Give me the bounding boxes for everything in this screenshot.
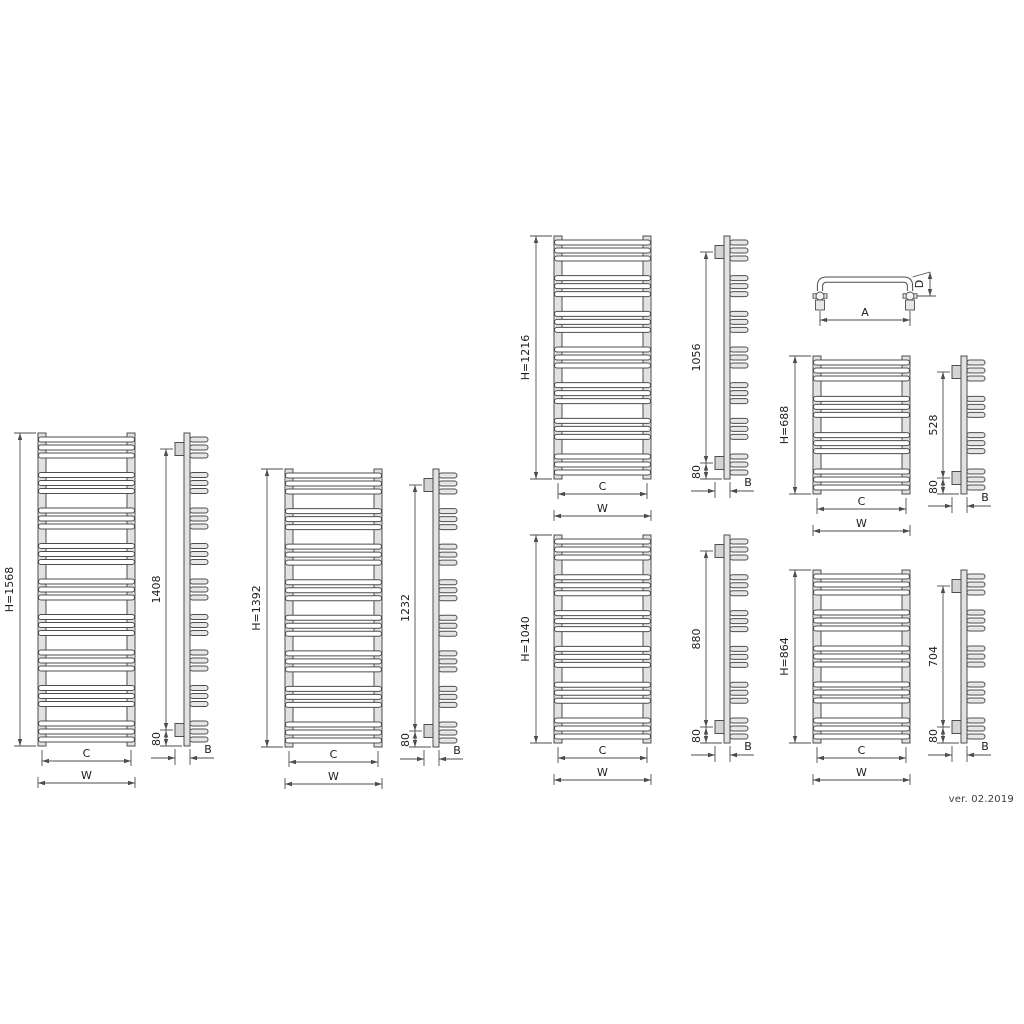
dimension-connection-span: 1232 bbox=[399, 485, 422, 731]
side-view bbox=[424, 469, 457, 747]
dimension-connection-span: 704 bbox=[927, 586, 950, 727]
wall-depth-label: B bbox=[744, 476, 752, 489]
dimension-overall-width: W bbox=[813, 517, 910, 536]
dimension-height: H=1568 bbox=[3, 433, 36, 746]
bottom-offset-label: 80 bbox=[690, 465, 703, 479]
overall-width-label: W bbox=[328, 770, 339, 783]
detail-width-label: A bbox=[861, 306, 869, 319]
bar-ends bbox=[967, 574, 985, 739]
wall-depth-label: B bbox=[744, 740, 752, 753]
top-connection bbox=[952, 366, 961, 379]
front-view bbox=[554, 236, 651, 479]
front-view bbox=[554, 535, 651, 743]
dimension-overall-width: W bbox=[813, 766, 910, 785]
connection-span-label: 880 bbox=[690, 629, 703, 650]
bar-detail-top-view: AD bbox=[813, 272, 936, 326]
top-connection bbox=[715, 545, 724, 558]
dimension-height: H=688 bbox=[778, 356, 811, 494]
top-connection bbox=[715, 246, 724, 259]
overall-width-label: W bbox=[597, 766, 608, 779]
top-connection bbox=[424, 479, 433, 492]
overall-width-label: W bbox=[81, 769, 92, 782]
bottom-offset-label: 80 bbox=[927, 480, 940, 494]
connection-span-label: 1056 bbox=[690, 344, 703, 372]
bottom-offset-label: 80 bbox=[399, 733, 412, 747]
overall-width-label: W bbox=[856, 766, 867, 779]
dimension-d: D bbox=[913, 272, 936, 296]
bottom-offset-label: 80 bbox=[150, 732, 163, 746]
height-label: H=1392 bbox=[250, 585, 263, 630]
side-view bbox=[715, 236, 748, 479]
inner-width-label: C bbox=[330, 748, 338, 761]
bottom-connection bbox=[175, 724, 184, 737]
fitting-foot bbox=[816, 300, 825, 310]
side-view bbox=[952, 570, 985, 743]
towel-bars bbox=[555, 539, 651, 739]
dimension-height: H=1216 bbox=[519, 236, 552, 479]
radiator-unit-1: H=1568CW140880B bbox=[3, 433, 214, 788]
top-connection bbox=[952, 580, 961, 593]
bar-fitting bbox=[813, 292, 827, 310]
connection-span-label: 528 bbox=[927, 415, 940, 436]
dimension-height: H=1040 bbox=[519, 535, 552, 743]
inner-width-label: C bbox=[599, 480, 607, 493]
tube-inner-edge bbox=[823, 282, 908, 291]
right-collector-rail bbox=[643, 535, 651, 743]
left-collector-rail bbox=[554, 535, 562, 743]
fitting-nut bbox=[906, 292, 914, 300]
radiator-unit-4: H=1040CW88080B bbox=[519, 535, 754, 785]
side-view bbox=[715, 535, 748, 743]
dimension-overall-width: W bbox=[554, 766, 651, 785]
fitting-foot bbox=[906, 300, 915, 310]
bar-ends bbox=[730, 539, 748, 739]
front-view bbox=[813, 570, 910, 743]
collector-profile bbox=[724, 236, 730, 479]
dimension-height: H=1392 bbox=[250, 469, 283, 747]
radiator-unit-5: H=688CW52880B bbox=[778, 356, 991, 536]
connection-span-label: 1408 bbox=[150, 576, 163, 604]
collector-profile bbox=[961, 570, 967, 743]
height-label: H=688 bbox=[778, 406, 791, 444]
bar-ends bbox=[967, 360, 985, 490]
dimension-connection-span: 880 bbox=[690, 551, 713, 727]
bottom-connection bbox=[715, 721, 724, 734]
dimension-inner-width: C bbox=[817, 744, 906, 763]
drawing-canvas: H=1568CW140880BH=1392CW123280BH=1216CW10… bbox=[0, 0, 1024, 1024]
bar-ends bbox=[439, 473, 457, 743]
fitting-nut bbox=[816, 292, 824, 300]
connection-span-label: 1232 bbox=[399, 594, 412, 622]
side-view bbox=[952, 356, 985, 494]
radiator-unit-6: H=864CW70480B bbox=[778, 570, 991, 785]
towel-bars bbox=[555, 240, 651, 475]
height-label: H=1568 bbox=[3, 567, 16, 612]
dimension-connection-span: 1056 bbox=[690, 252, 713, 463]
version-label: ver. 02.2019 bbox=[949, 794, 1014, 805]
collector-profile bbox=[961, 356, 967, 494]
height-label: H=1216 bbox=[519, 335, 532, 380]
towel-bars bbox=[814, 574, 910, 739]
radiator-unit-3: H=1216CW105680B bbox=[519, 236, 754, 521]
bottom-connection bbox=[715, 457, 724, 470]
wall-depth-label: B bbox=[204, 743, 212, 756]
technical-drawing-page: H=1568CW140880BH=1392CW123280BH=1216CW10… bbox=[0, 0, 1024, 1024]
height-label: H=864 bbox=[778, 637, 791, 675]
inner-width-label: C bbox=[599, 744, 607, 757]
dimension-height: H=864 bbox=[778, 570, 811, 743]
towel-bars bbox=[814, 360, 910, 490]
bar-tube bbox=[817, 277, 912, 291]
bar-fitting bbox=[903, 292, 917, 310]
dimension-overall-width: W bbox=[285, 770, 382, 789]
dimension-inner-width: C bbox=[817, 495, 906, 514]
dimension-connection-span: 1408 bbox=[150, 449, 173, 730]
dimension-inner-width: C bbox=[42, 747, 131, 766]
top-connection bbox=[175, 443, 184, 456]
dimension-connection-span: 528 bbox=[927, 372, 950, 478]
radiator-unit-2: H=1392CW123280B bbox=[250, 469, 463, 789]
front-view bbox=[285, 469, 382, 747]
overall-width-label: W bbox=[597, 502, 608, 515]
front-view bbox=[38, 433, 135, 746]
overall-width-label: W bbox=[856, 517, 867, 530]
connection-span-label: 704 bbox=[927, 646, 940, 667]
wall-depth-label: B bbox=[981, 740, 989, 753]
bottom-connection bbox=[424, 725, 433, 738]
collector-profile bbox=[184, 433, 190, 746]
collector-profile bbox=[433, 469, 439, 747]
dimension-inner-width: C bbox=[558, 480, 647, 499]
inner-width-label: C bbox=[858, 495, 866, 508]
tube-outer-edge bbox=[817, 277, 912, 291]
dimension-inner-width: C bbox=[289, 748, 378, 767]
wall-depth-label: B bbox=[453, 744, 461, 757]
height-label: H=1040 bbox=[519, 616, 532, 661]
collector-profile bbox=[724, 535, 730, 743]
bottom-offset-label: 80 bbox=[927, 729, 940, 743]
bar-ends bbox=[190, 437, 208, 742]
dimension-overall-width: W bbox=[38, 769, 135, 788]
inner-width-label: C bbox=[858, 744, 866, 757]
detail-depth-label: D bbox=[913, 280, 926, 288]
bottom-offset-label: 80 bbox=[690, 729, 703, 743]
towel-bars bbox=[286, 473, 382, 743]
dimension-a: A bbox=[820, 306, 910, 326]
front-view bbox=[813, 356, 910, 494]
bottom-connection bbox=[952, 721, 961, 734]
dimension-inner-width: C bbox=[558, 744, 647, 763]
inner-width-label: C bbox=[83, 747, 91, 760]
bar-ends bbox=[730, 240, 748, 475]
dimension-overall-width: W bbox=[554, 502, 651, 521]
bottom-connection bbox=[952, 472, 961, 485]
towel-bars bbox=[39, 437, 135, 742]
side-view bbox=[175, 433, 208, 746]
wall-depth-label: B bbox=[981, 491, 989, 504]
